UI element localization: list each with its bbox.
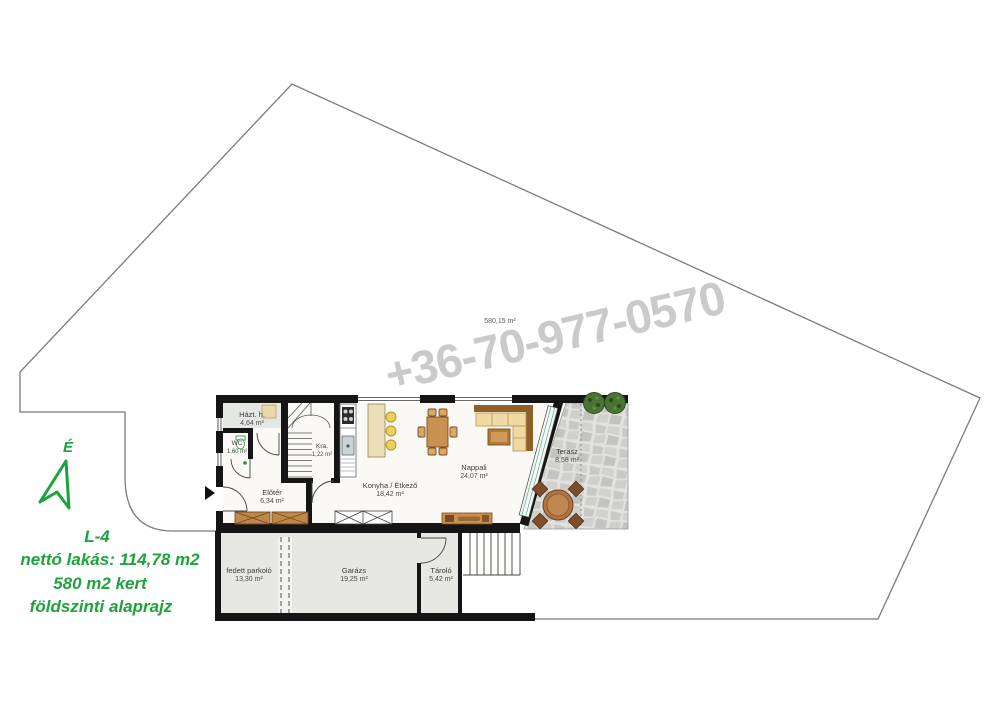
unit-code: L-4 bbox=[84, 527, 110, 547]
window-left-hazt bbox=[216, 418, 223, 431]
room-label-terasz: Terasz8,58 m² bbox=[555, 447, 579, 465]
window-top-dining bbox=[455, 395, 512, 403]
staircase-outdoor bbox=[463, 533, 520, 575]
window-left-wc bbox=[216, 453, 223, 466]
crossed-cabinet bbox=[335, 511, 392, 524]
room-label-tarolo: Tároló5,42 m² bbox=[429, 566, 453, 584]
net-area-text: nettó lakás: 114,78 m2 bbox=[20, 550, 199, 570]
bar-stool bbox=[386, 412, 396, 422]
floor-name-text: földszinti alaprajz bbox=[30, 597, 173, 617]
dining-chair bbox=[428, 448, 436, 455]
stove-icon bbox=[342, 407, 354, 424]
floorplan-canvas: Házt. h.4,64 m² WC1,60 m² Kra.1,22 m² El… bbox=[0, 0, 1000, 707]
north-arrow-icon bbox=[36, 456, 78, 514]
north-label: É bbox=[63, 439, 73, 456]
dining-chair bbox=[439, 409, 447, 416]
plant-icon bbox=[584, 393, 605, 414]
dining-chair bbox=[418, 427, 425, 437]
bar-stool bbox=[386, 426, 396, 436]
bar-stool bbox=[386, 440, 396, 450]
parking-open-edge bbox=[278, 537, 292, 613]
sofa-back bbox=[474, 405, 533, 412]
room-label-hazt: Házt. h.4,64 m² bbox=[239, 410, 265, 428]
room-label-nappali: Nappali24,07 m² bbox=[460, 463, 488, 481]
room-label-garazs: Garázs19,25 m² bbox=[340, 566, 368, 584]
dining-chair bbox=[428, 409, 436, 416]
sofa-seat bbox=[476, 413, 526, 426]
dining-chair bbox=[439, 448, 447, 455]
kitchen-island bbox=[368, 404, 385, 457]
plant-icon bbox=[605, 393, 626, 414]
entrance-arrow-icon bbox=[205, 486, 215, 500]
room-label-eloter: Előtér6,34 m² bbox=[260, 488, 284, 506]
room-label-parkolo: fedett parkoló13,30 m² bbox=[226, 566, 271, 584]
dining-chair bbox=[450, 427, 457, 437]
garden-area-text: 580 m2 kert bbox=[53, 574, 147, 594]
dining-table bbox=[427, 417, 448, 447]
room-label-wc: WC1,60 m² bbox=[227, 440, 247, 456]
room-label-konyha: Konyha / Étkező18,42 m² bbox=[363, 481, 418, 499]
room-label-kra: Kra.1,22 m² bbox=[312, 443, 332, 459]
